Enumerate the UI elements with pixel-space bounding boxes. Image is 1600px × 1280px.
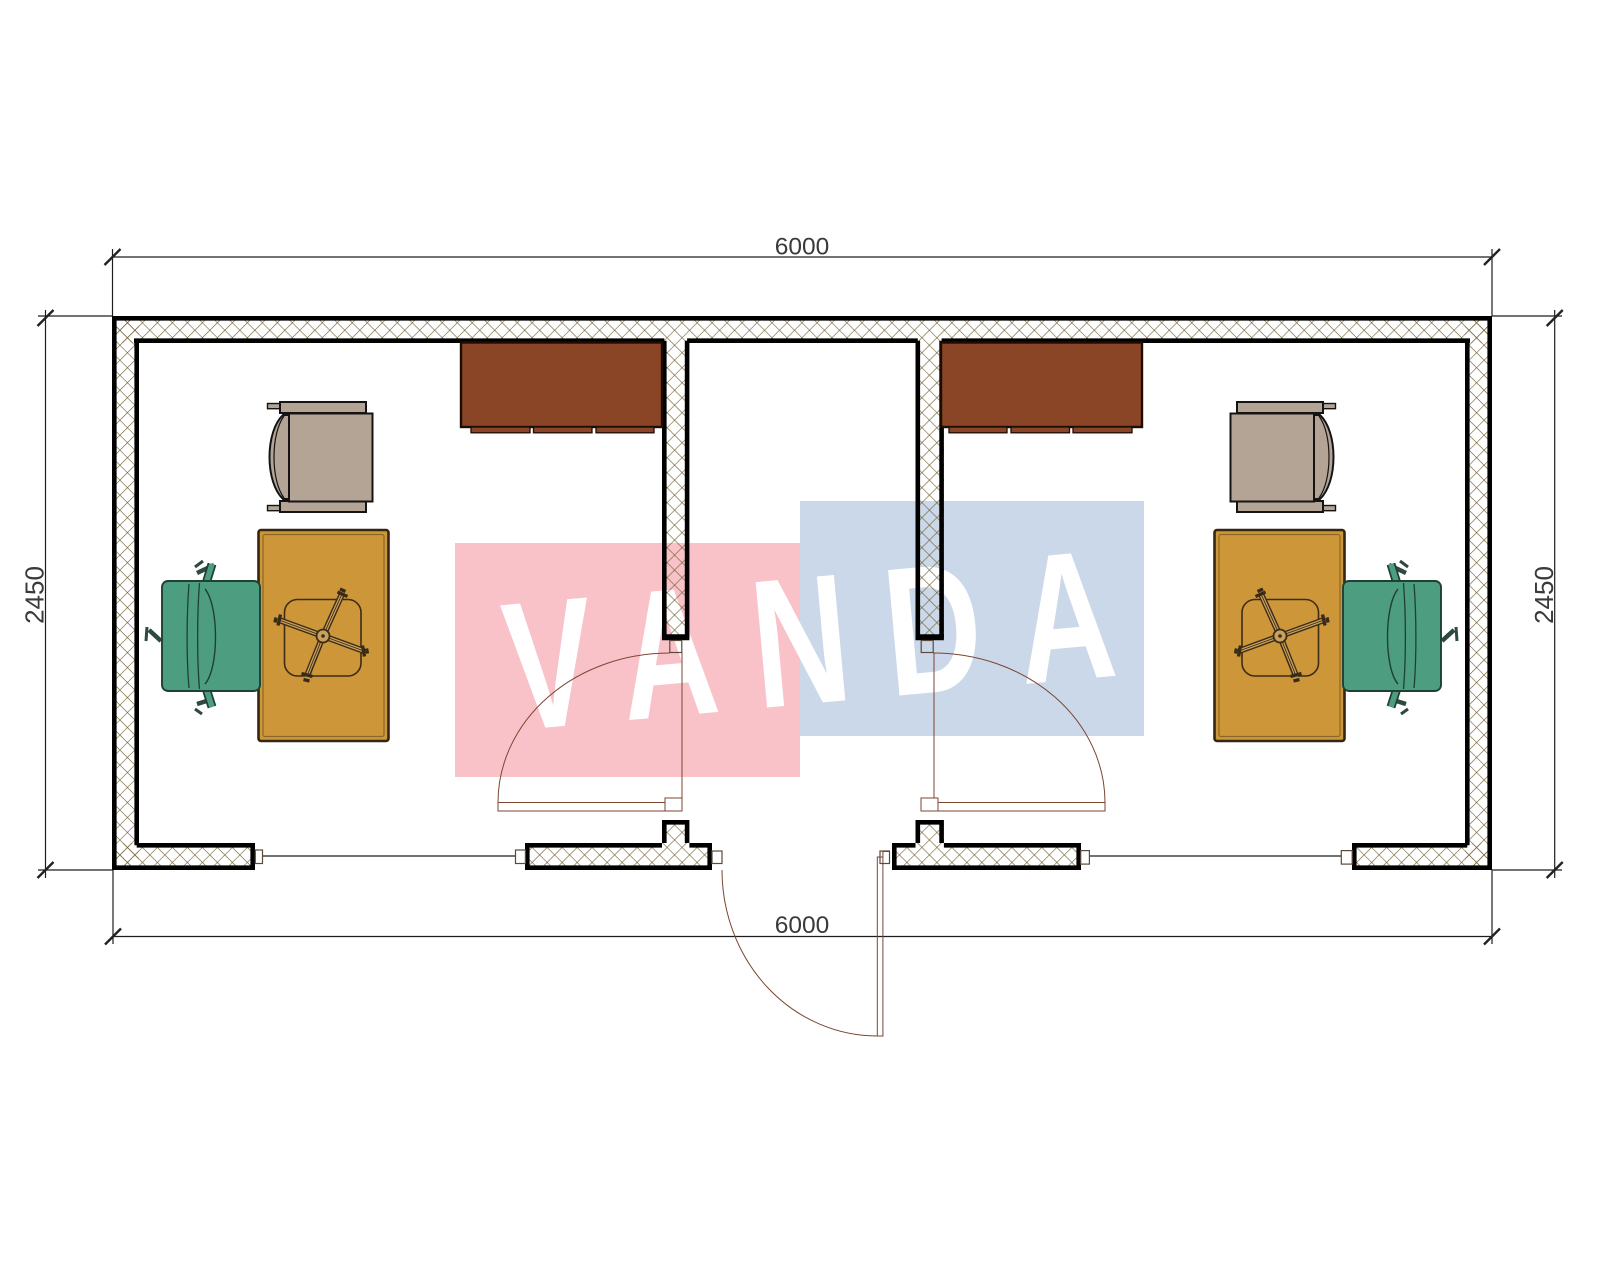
svg-text:6000: 6000 (775, 234, 830, 261)
svg-text:2450: 2450 (1529, 566, 1559, 624)
svg-text:2450: 2450 (20, 566, 50, 624)
svg-text:6000: 6000 (775, 912, 830, 939)
